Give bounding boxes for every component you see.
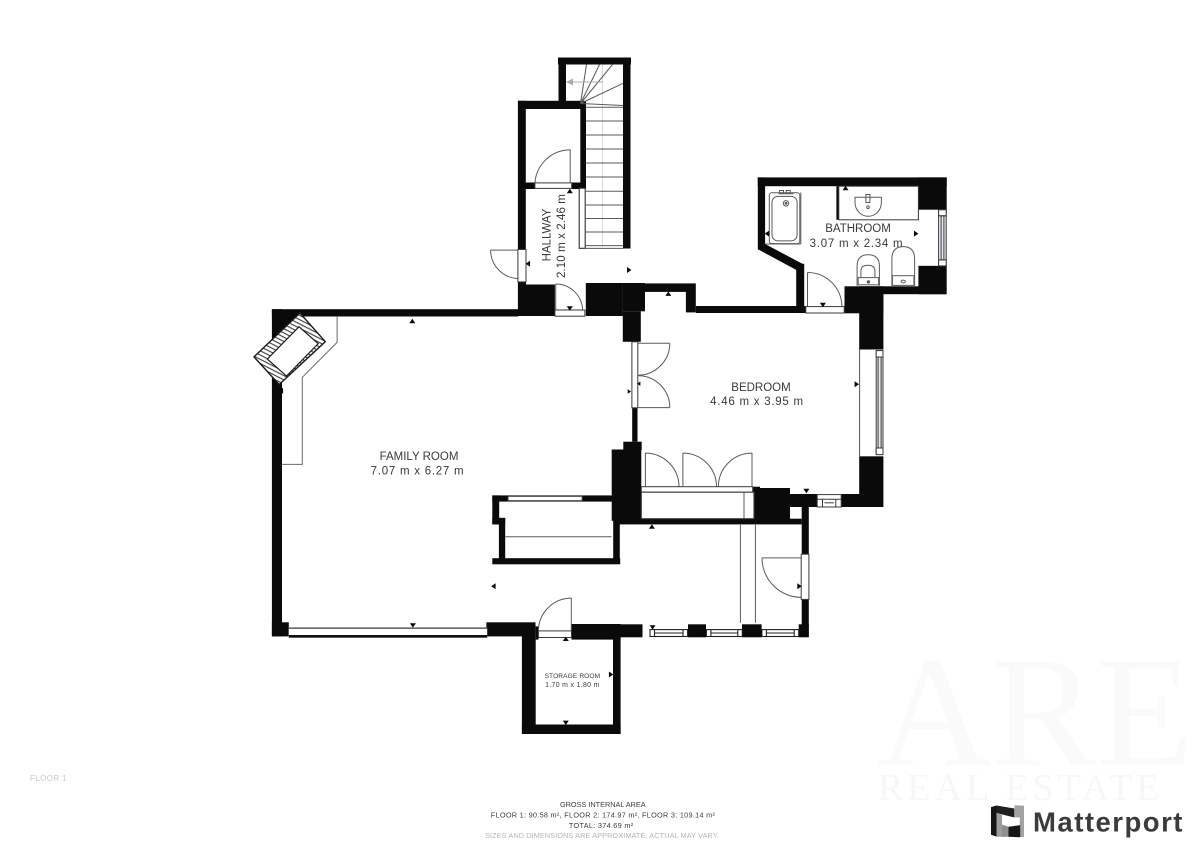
svg-text:BEDROOM: BEDROOM — [731, 382, 790, 394]
svg-text:BATHROOM: BATHROOM — [825, 223, 891, 235]
svg-text:2.10 m x 2.46 m: 2.10 m x 2.46 m — [556, 194, 568, 278]
svg-text:STORAGE ROOM: STORAGE ROOM — [545, 673, 601, 680]
svg-text:SIZES AND DIMENSIONS ARE APPRO: SIZES AND DIMENSIONS ARE APPROXIMATE, AC… — [485, 831, 719, 840]
svg-text:GROSS INTERNAL AREA: GROSS INTERNAL AREA — [560, 800, 646, 809]
svg-text:Matterport: Matterport — [1033, 807, 1184, 838]
svg-text:1.70 m x 1.80 m: 1.70 m x 1.80 m — [545, 682, 600, 689]
svg-text:FLOOR 1: 90.58 m², FLOOR 2: 17: FLOOR 1: 90.58 m², FLOOR 2: 174.97 m², F… — [491, 811, 716, 820]
svg-text:FLOOR 1: FLOOR 1 — [30, 774, 67, 783]
svg-text:HALLWAY: HALLWAY — [542, 208, 554, 261]
svg-text:3.07 m x 2.34 m: 3.07 m x 2.34 m — [810, 238, 904, 250]
svg-text:4.46 m x 3.95 m: 4.46 m x 3.95 m — [710, 396, 804, 408]
svg-text:FAMILY ROOM: FAMILY ROOM — [380, 451, 459, 463]
svg-text:7.07 m x 6.27 m: 7.07 m x 6.27 m — [371, 465, 465, 477]
svg-text:REAL ESTATE: REAL ESTATE — [878, 767, 1163, 809]
svg-text:TOTAL: 374.69 m²: TOTAL: 374.69 m² — [569, 821, 634, 830]
